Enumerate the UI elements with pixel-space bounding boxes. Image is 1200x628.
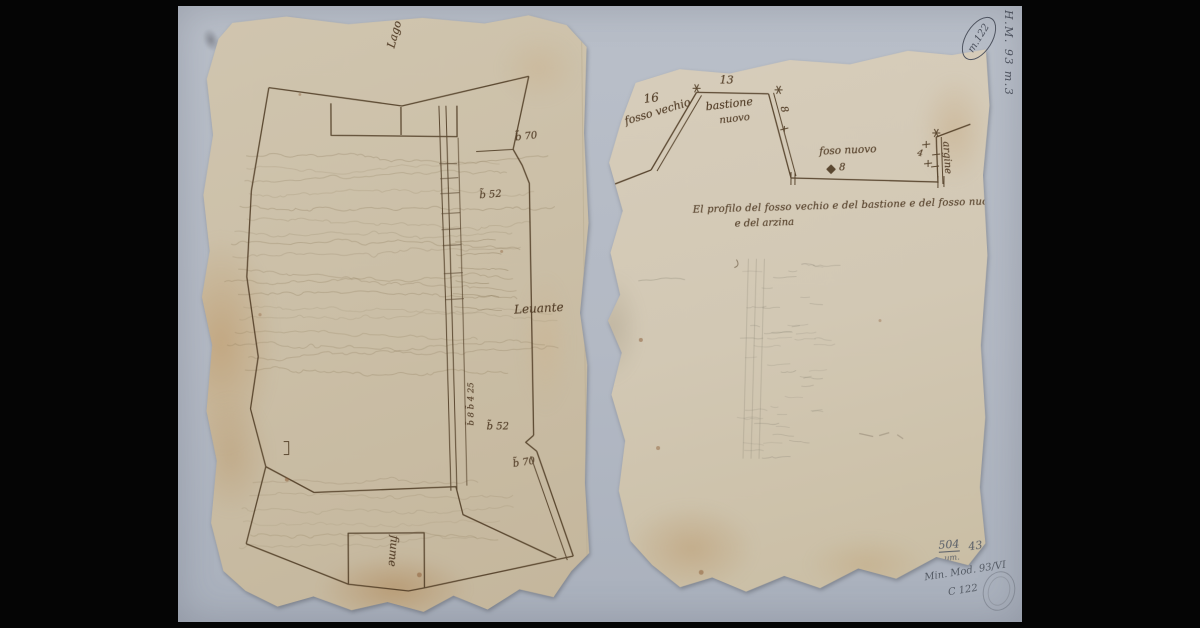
measure-upper: b̃ 52	[479, 189, 502, 202]
measure-lower: b̃ 52	[487, 421, 509, 432]
number-bastion-top: 13	[720, 73, 734, 86]
left-manuscript-sheet: Lago b̃ 70 b̃ 52 Leuante b̃ 8 b̃ 4 25 b̃…	[198, 13, 591, 613]
number-old-ditch-width: 16	[643, 90, 660, 106]
label-argine: argine	[940, 141, 953, 174]
foxing-spots	[637, 317, 907, 591]
inventory-sub: um.	[944, 552, 960, 562]
fort-outline	[244, 76, 574, 592]
inventory-number-right: 43	[968, 538, 984, 553]
fold-line	[581, 19, 587, 605]
faint-marks	[859, 432, 903, 438]
number-new-ditch: 8	[839, 162, 845, 173]
label-levante: Leuante	[514, 300, 564, 317]
caption-line-2: e del arzina	[735, 217, 795, 230]
ditch-mark	[827, 165, 835, 173]
left-sheet-paper: Lago b̃ 70 b̃ 52 Leuante b̃ 8 b̃ 4 25 b̃…	[198, 13, 591, 613]
right-manuscript-sheet: 16 13 fosso vechio bastione nuovo 8 foso…	[596, 43, 992, 596]
right-sheet-paper: 16 13 fosso vechio bastione nuovo 8 foso…	[596, 43, 992, 596]
scanned-manuscript-page: Lago b̃ 70 b̃ 52 Leuante b̃ 8 b̃ 4 25 b̃…	[0, 0, 1200, 628]
shelfmark-vertical: H.M. 93 m.3	[1002, 10, 1015, 96]
bleedthrough-sketch	[637, 258, 840, 459]
profile-drawing	[596, 43, 992, 596]
measure-column-vertical: b̃ 8 b̃ 4 25	[466, 382, 476, 425]
inventory-number: 504	[938, 537, 960, 552]
label-river: fiume	[386, 535, 402, 567]
